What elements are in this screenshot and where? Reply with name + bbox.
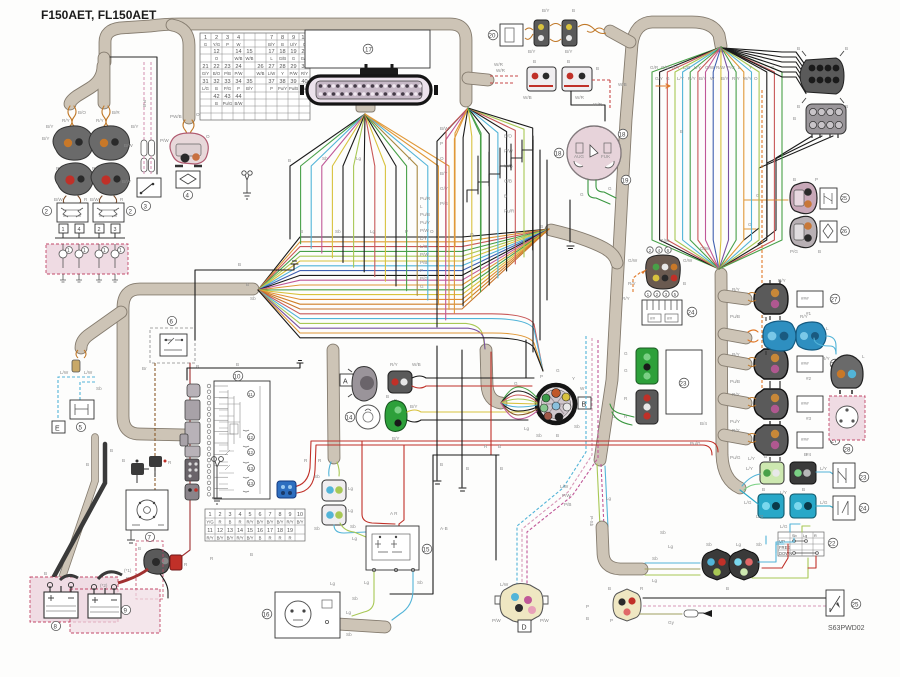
svg-text:P/G: P/G [727, 65, 735, 70]
svg-text:19: 19 [622, 178, 629, 185]
svg-text:P/W: P/W [160, 138, 169, 143]
svg-text:1: 1 [119, 248, 122, 254]
svg-text:22: 22 [829, 541, 836, 548]
svg-text:P/W: P/W [504, 149, 513, 154]
svg-text:U/Y: U/Y [290, 42, 297, 47]
svg-text:O: O [470, 232, 474, 237]
svg-text:G/W: G/W [628, 258, 638, 263]
svg-text:44: 44 [235, 94, 241, 100]
svg-text:8: 8 [281, 35, 284, 41]
svg-text:R/Y: R/Y [732, 428, 740, 433]
svg-text:1: 1 [209, 512, 212, 518]
svg-text:P/G: P/G [440, 201, 448, 206]
svg-text:G/R: G/R [650, 65, 659, 70]
svg-text:G/W: G/W [705, 65, 715, 70]
svg-text:27: 27 [268, 64, 274, 70]
svg-text:B: B [215, 86, 218, 91]
svg-text:P/W: P/W [492, 618, 501, 623]
svg-text:B/Y: B/Y [565, 49, 572, 54]
svg-text:12: 12 [248, 435, 254, 440]
svg-text:3: 3 [114, 227, 117, 233]
svg-text:P/G: P/G [790, 249, 798, 254]
svg-text:P: P [237, 86, 240, 91]
svg-text:3: 3 [229, 512, 232, 518]
svg-text:26: 26 [257, 64, 263, 70]
svg-text:Sb: Sb [660, 530, 666, 535]
svg-text:43: 43 [224, 94, 230, 100]
svg-text:G: G [612, 414, 616, 419]
svg-text:12: 12 [213, 49, 219, 55]
svg-text:24: 24 [860, 506, 867, 513]
svg-text:10: 10 [297, 512, 303, 518]
svg-text:B/Y: B/Y [247, 536, 254, 541]
svg-text:R: R [218, 520, 221, 525]
svg-text:12: 12 [217, 528, 223, 534]
svg-text:###: ### [801, 437, 809, 442]
svg-text:E: E [55, 426, 60, 433]
svg-text:14: 14 [237, 528, 243, 534]
svg-text:8: 8 [279, 512, 282, 518]
svg-text:B: B [259, 536, 262, 541]
svg-text:B: B [793, 116, 796, 121]
svg-text:L: L [826, 326, 829, 331]
svg-text:G: G [624, 368, 628, 373]
svg-text:L: L [738, 65, 741, 70]
svg-text:B: B [229, 520, 232, 525]
svg-text:B: B [386, 394, 389, 399]
svg-text:R/Y: R/Y [688, 76, 696, 81]
svg-text:B/Y: B/Y [257, 520, 264, 525]
svg-text:B/Y: B/Y [542, 8, 549, 13]
svg-text:B: B [596, 66, 599, 71]
svg-text:5: 5 [249, 512, 252, 518]
svg-text:B: B [110, 448, 113, 453]
svg-text:G/B: G/B [504, 179, 512, 184]
svg-text:Pu/B: Pu/B [420, 212, 430, 217]
svg-text:P/G: P/G [224, 86, 231, 91]
svg-text:A·B: A·B [440, 526, 448, 531]
svg-text:##: ## [667, 316, 673, 321]
svg-text:B: B [764, 454, 767, 459]
svg-text:Sb: Sb [574, 424, 580, 429]
svg-text:B: B [215, 101, 218, 106]
svg-text:7: 7 [148, 535, 152, 542]
svg-text:2: 2 [45, 209, 49, 216]
svg-text:B/Y: B/Y [217, 536, 224, 541]
svg-text:9: 9 [292, 35, 295, 41]
svg-text:25: 25 [841, 196, 847, 202]
svg-text:G: G [420, 284, 424, 289]
svg-text:1: 1 [647, 292, 650, 297]
svg-text:R/W: R/W [716, 65, 726, 70]
svg-text:P/W: P/W [420, 228, 429, 233]
svg-text:Y/G: Y/G [213, 42, 220, 47]
svg-text:G: G [204, 42, 207, 47]
svg-text:P: P [405, 229, 408, 234]
svg-text:Sb: Sb [756, 542, 762, 547]
svg-text:B: B [440, 462, 443, 467]
svg-text:G: G [514, 381, 518, 386]
svg-text:P/B: P/B [420, 260, 427, 265]
svg-text:5: 5 [79, 425, 83, 432]
svg-text:O: O [206, 134, 210, 139]
svg-text:B/Y: B/Y [246, 86, 253, 91]
svg-text:Pu/B: Pu/B [730, 314, 740, 319]
svg-text:B: B [797, 46, 800, 51]
svg-text:L/W: L/W [560, 484, 569, 489]
svg-text:Lg: Lg [803, 534, 807, 538]
svg-text:G: G [556, 368, 560, 373]
svg-text:P/G: P/G [420, 276, 428, 281]
svg-text:L/G: L/G [756, 514, 764, 519]
svg-text:R: R [268, 536, 271, 541]
svg-text:Pu/R: Pu/R [504, 209, 515, 214]
svg-text:13: 13 [248, 481, 254, 486]
svg-text:B: B [238, 262, 241, 267]
svg-text:D: D [522, 625, 527, 632]
svg-text:1: 1 [103, 248, 106, 254]
svg-text:R/Y: R/Y [732, 287, 740, 292]
svg-text:L/G: L/G [420, 244, 428, 249]
svg-text:#3: #3 [806, 416, 812, 421]
svg-text:P: P [270, 86, 273, 91]
svg-text:G/B: G/B [661, 65, 669, 70]
svg-text:7: 7 [269, 512, 272, 518]
svg-text:Lg: Lg [652, 578, 658, 583]
svg-text:P: P [540, 374, 543, 379]
svg-text:Pu/B: Pu/B [289, 86, 298, 91]
svg-text:21: 21 [202, 64, 208, 70]
svg-text:G: G [580, 192, 584, 197]
svg-text:4: 4 [658, 248, 661, 253]
svg-text:B: B [797, 104, 800, 109]
svg-text:6: 6 [667, 248, 670, 253]
svg-text:B/Y: B/Y [267, 520, 274, 525]
svg-text:W/B: W/B [246, 56, 254, 61]
svg-text:Pu/G: Pu/G [690, 441, 701, 446]
svg-text:39: 39 [290, 79, 296, 85]
svg-text:5: 5 [674, 292, 677, 297]
svg-text:34: 34 [235, 79, 241, 85]
svg-text:B/W: B/W [122, 179, 131, 184]
svg-text:R/Y: R/Y [62, 118, 70, 123]
svg-text:Pu/G: Pu/G [223, 101, 233, 106]
svg-text:R/Y: R/Y [301, 71, 308, 76]
svg-text:B/Y: B/Y [131, 124, 138, 129]
svg-text:B: B [281, 42, 284, 47]
svg-text:R/Y: R/Y [800, 314, 808, 319]
svg-text:Lg: Lg [356, 156, 362, 161]
svg-text:16: 16 [257, 528, 263, 534]
svg-text:W/R: W/R [593, 102, 603, 107]
svg-text:B: B [680, 129, 683, 134]
svg-text:P/W: P/W [420, 252, 429, 257]
svg-text:P/W: P/W [235, 71, 243, 76]
svg-text:O: O [440, 156, 444, 161]
svg-text:B/Y: B/Y [528, 49, 535, 54]
svg-text:(*2): (*2) [100, 583, 108, 588]
svg-text:31: 31 [202, 79, 208, 85]
svg-text:24: 24 [235, 64, 241, 70]
svg-text:B: B [122, 458, 125, 463]
svg-text:B: B [300, 229, 303, 234]
svg-text:B/Y: B/Y [699, 76, 706, 81]
svg-text:1: 1 [204, 35, 207, 41]
svg-text:B: B [802, 487, 805, 492]
svg-text:1: 1 [62, 227, 65, 233]
svg-text:Sb: Sb [322, 156, 328, 161]
svg-text:FUK: FUK [601, 154, 611, 159]
svg-text:##: ## [650, 316, 656, 321]
svg-text:L/Y: L/Y [420, 236, 427, 241]
svg-text:Sb: Sb [335, 229, 341, 234]
svg-text:37: 37 [268, 79, 274, 85]
svg-text:R: R [238, 520, 241, 525]
svg-text:R/Y: R/Y [732, 352, 740, 357]
svg-text:22: 22 [213, 64, 219, 70]
svg-text:B/W: B/W [235, 101, 243, 106]
svg-text:13: 13 [227, 528, 233, 534]
svg-text:P: P [420, 268, 423, 273]
svg-text:2: 2 [215, 35, 218, 41]
svg-text:4: 4 [239, 512, 242, 518]
svg-text:P/W: P/W [540, 618, 549, 623]
svg-text:G: G [666, 76, 670, 81]
svg-text:B/Y: B/Y [721, 76, 728, 81]
svg-text:B: B [504, 194, 507, 199]
svg-text:###: ### [801, 361, 809, 366]
svg-text:14: 14 [346, 415, 353, 422]
svg-text:Sb: Sb [792, 534, 797, 538]
svg-text:R/Y: R/Y [778, 278, 786, 283]
svg-text:4: 4 [186, 193, 190, 200]
svg-text:L/W: L/W [268, 71, 275, 76]
svg-text:18: 18 [277, 528, 283, 534]
svg-text:10: 10 [234, 374, 241, 381]
svg-text:W/B: W/B [523, 95, 532, 100]
svg-text:B: B [567, 59, 570, 64]
svg-text:FREE: FREE [779, 545, 790, 550]
svg-text:Lg: Lg [736, 542, 742, 547]
svg-text:Pu/B: Pu/B [730, 379, 740, 384]
svg-text:8: 8 [54, 624, 58, 631]
svg-text:B/O: B/O [213, 71, 221, 76]
svg-text:W/R: W/R [496, 68, 506, 73]
svg-text:W: W [237, 42, 241, 47]
svg-text:25: 25 [852, 602, 859, 609]
svg-text:O: O [196, 112, 200, 117]
svg-text:A: A [343, 379, 348, 386]
svg-text:A R: A R [390, 511, 398, 516]
svg-text:Pu/Y: Pu/Y [420, 220, 430, 225]
svg-text:R: R [288, 536, 291, 541]
svg-text:B: B [498, 444, 501, 449]
svg-text:Sb: Sb [417, 580, 423, 585]
svg-text:(*1): (*1) [124, 568, 132, 573]
svg-text:18: 18 [279, 49, 285, 55]
svg-text:11: 11 [248, 392, 253, 397]
svg-text:B/O: B/O [504, 134, 512, 139]
svg-text:L/W: L/W [500, 582, 509, 587]
svg-text:Lg: Lg [524, 426, 530, 431]
svg-text:Sb: Sb [314, 474, 320, 479]
svg-text:Lg: Lg [346, 610, 352, 615]
svg-text:Lg: Lg [348, 508, 354, 513]
svg-text:9: 9 [289, 512, 292, 518]
svg-text:Sb: Sb [652, 556, 658, 561]
svg-text:B: B [533, 59, 536, 64]
svg-text:G/Y: G/Y [440, 186, 448, 191]
svg-text:B: B [86, 462, 89, 467]
svg-text:6: 6 [170, 319, 174, 326]
svg-text:L/W: L/W [84, 370, 93, 375]
svg-text:L/Y: L/Y [820, 466, 827, 471]
svg-text:B: B [288, 158, 291, 163]
svg-text:B: B [44, 571, 47, 576]
svg-text:Sb: Sb [352, 596, 358, 601]
svg-text:12: 12 [248, 450, 254, 455]
svg-text:G/Y: G/Y [202, 71, 209, 76]
svg-text:B/Y: B/Y [46, 124, 53, 129]
svg-text:G/W: G/W [683, 258, 693, 263]
svg-text:24: 24 [688, 310, 695, 317]
svg-text:R/Y: R/Y [822, 356, 830, 361]
svg-text:P B: P B [142, 100, 147, 107]
svg-text:P: P [408, 156, 411, 161]
svg-text:R/Y: R/Y [390, 362, 398, 367]
svg-text:P/W: P/W [562, 493, 571, 498]
svg-text:DOWN: DOWN [779, 551, 792, 556]
svg-text:35: 35 [246, 79, 252, 85]
svg-text:G: G [292, 56, 295, 61]
svg-text:2: 2 [219, 512, 222, 518]
svg-text:2: 2 [98, 227, 101, 233]
svg-text:B/4: B/4 [700, 421, 707, 426]
svg-text:B: B [683, 281, 686, 286]
svg-text:38: 38 [279, 79, 285, 85]
svg-text:17: 17 [267, 528, 273, 534]
svg-text:R/Y: R/Y [732, 76, 740, 81]
svg-text:B: B [138, 546, 141, 551]
svg-text:2: 2 [649, 248, 652, 253]
svg-text:Lg: Lg [364, 580, 370, 585]
svg-text:L/G: L/G [202, 86, 209, 91]
svg-text:O: O [754, 76, 758, 81]
svg-text:B/R: B/R [112, 110, 120, 115]
svg-text:19: 19 [287, 528, 293, 534]
svg-text:B/Y: B/Y [410, 404, 417, 409]
svg-text:W/B: W/B [257, 71, 265, 76]
svg-text:Y/G: Y/G [206, 520, 213, 525]
svg-text:28: 28 [844, 447, 851, 454]
svg-text:Gy: Gy [668, 620, 675, 625]
svg-text:28: 28 [279, 64, 285, 70]
svg-text:R/Y: R/Y [672, 65, 680, 70]
svg-text:W/B: W/B [235, 56, 243, 61]
svg-text:B: B [540, 224, 543, 229]
svg-text:17: 17 [365, 47, 372, 54]
svg-text:B: B [793, 177, 796, 182]
svg-text:B/Y: B/Y [277, 520, 284, 525]
svg-text:G: G [608, 186, 612, 191]
svg-text:AUG: AUG [574, 154, 584, 159]
svg-text:P-Sb: P-Sb [589, 516, 594, 527]
svg-text:1: 1 [83, 248, 86, 254]
svg-text:P/B: P/B [564, 502, 571, 507]
svg-text:15: 15 [423, 547, 430, 554]
svg-text:Sb: Sb [250, 296, 256, 301]
svg-text:R/Y: R/Y [237, 536, 244, 541]
svg-text:B/W: B/W [54, 197, 63, 202]
svg-text:Pu/R: Pu/R [420, 196, 431, 201]
svg-text:P: P [440, 141, 443, 146]
svg-text:#2: #2 [806, 376, 812, 381]
svg-text:R/Y: R/Y [207, 536, 214, 541]
svg-text:3: 3 [665, 292, 668, 297]
svg-text:Lg: Lg [352, 536, 358, 541]
svg-text:B: B [845, 46, 848, 51]
svg-text:B: B [466, 466, 469, 471]
svg-text:Sb: Sb [314, 526, 320, 531]
svg-text:R/Y: R/Y [732, 392, 740, 397]
svg-text:L/G: L/G [780, 524, 788, 529]
svg-text:R/Y: R/Y [628, 281, 636, 286]
svg-text:G/W: G/W [660, 238, 670, 243]
svg-text:Pu/Y: Pu/Y [730, 419, 740, 424]
svg-text:L/G: L/G [820, 500, 828, 505]
svg-text:R/Y: R/Y [96, 118, 104, 123]
svg-text:27: 27 [831, 297, 838, 304]
svg-text:Y: Y [281, 71, 284, 76]
svg-text:P: P [586, 604, 589, 609]
svg-text:B/Y: B/Y [227, 536, 234, 541]
svg-text:G/W: G/W [700, 246, 710, 251]
svg-text:32: 32 [213, 79, 219, 85]
svg-text:B: B [608, 586, 611, 591]
svg-text:Sb: Sb [350, 524, 356, 529]
svg-text:W: W [580, 386, 585, 391]
svg-text:23: 23 [680, 381, 687, 388]
svg-text:20: 20 [489, 33, 496, 40]
svg-text:L/W: L/W [60, 370, 69, 375]
svg-text:W/B: W/B [412, 362, 421, 367]
svg-text:B/Y: B/Y [392, 436, 399, 441]
svg-text:17: 17 [268, 49, 274, 55]
svg-text:Lg: Lg [370, 229, 376, 234]
svg-text:18: 18 [555, 151, 562, 158]
svg-text:Sb: Sb [706, 542, 712, 547]
svg-text:R/Y: R/Y [247, 520, 254, 525]
svg-text:4: 4 [237, 35, 240, 41]
svg-text:Lg: Lg [606, 496, 612, 501]
svg-text:3: 3 [226, 35, 229, 41]
svg-text:B: B [762, 487, 765, 492]
svg-text:G: G [624, 351, 628, 356]
svg-text:B/Y: B/Y [297, 520, 304, 525]
svg-text:19: 19 [290, 49, 296, 55]
svg-text:Lg: Lg [330, 581, 336, 586]
svg-text:L/G: L/G [683, 65, 691, 70]
svg-text:23: 23 [860, 475, 867, 482]
svg-text:Y: Y [572, 376, 575, 381]
svg-text:B: B [250, 552, 253, 557]
svg-text:Br: Br [142, 366, 147, 371]
svg-text:B: B [556, 433, 559, 438]
svg-text:L/Y: L/Y [746, 466, 753, 471]
svg-text:G/Y: G/Y [655, 76, 663, 81]
svg-text:R/Y: R/Y [287, 520, 294, 525]
svg-text:6: 6 [259, 512, 262, 518]
